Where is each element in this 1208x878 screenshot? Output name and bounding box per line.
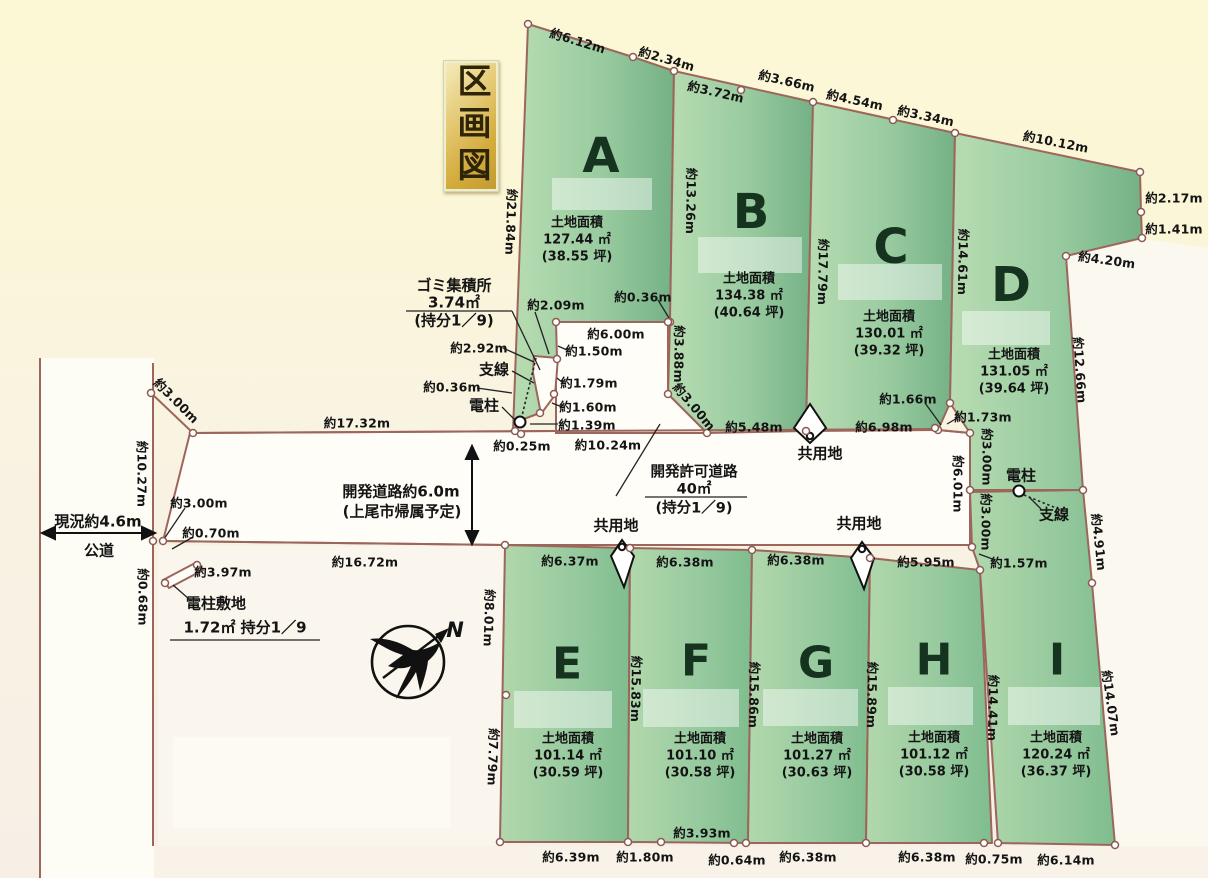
permit-road-label-3: (持分1／9) (656, 497, 733, 518)
dim-road-1732: 約17.32m (324, 413, 390, 432)
dim-right-1: 約2.17m (1145, 188, 1203, 207)
dim-ef-side: 約15.83m (627, 656, 647, 723)
plot-H-label: H (916, 635, 953, 686)
subdivision-map: 区画図 A B C D E F G H I 土地面積 127.44 ㎡ (38.… (0, 0, 1208, 878)
plot-F-label: F (681, 636, 711, 687)
dev-road-label-2: (上尾市帰属予定) (343, 501, 462, 522)
dim-f-bot-2: 約3.93m (673, 823, 731, 842)
dim-gomi-edge: 約2.09m (527, 295, 585, 314)
plot-D-area: 土地面積 131.05 ㎡ (39.64 坪) (979, 347, 1050, 398)
public-road-width-label: 現況約4.6m (54, 511, 141, 532)
plot-A-label: A (582, 128, 619, 184)
plot-E-area: 土地面積 101.14 ㎡ (30.59 坪) (533, 731, 604, 782)
dim-left-068: 約0.68m (135, 568, 154, 626)
dim-road-1024: 約10.24m (575, 435, 641, 454)
utility-pole-left-icon (515, 417, 526, 428)
plot-G-label: G (798, 638, 834, 689)
pole-site-label: 電柱敷地 (186, 593, 246, 614)
guy-wire-label-right: 支線 (1039, 504, 1069, 525)
dim-e-left-2: 約7.79m (484, 728, 505, 786)
dim-seg-160: 約1.60m (559, 397, 617, 416)
dim-i-157: 約1.57m (990, 553, 1048, 572)
dim-fg-side: 約15.86m (745, 662, 765, 729)
blank-note-box (173, 737, 450, 828)
dim-ab-side: 約13.26m (682, 168, 702, 235)
dim-right-2: 約1.41m (1145, 219, 1203, 238)
plot-H-area: 土地面積 101.12 ㎡ (30.58 坪) (899, 730, 970, 781)
plot-B-label: B (733, 184, 770, 240)
common-land-label-2: 共用地 (593, 515, 638, 536)
dim-seg-179: 約1.79m (560, 373, 618, 392)
dim-f-top: 約6.38m (656, 552, 714, 571)
garbage-station-share: (持分1／9) (414, 310, 494, 331)
public-road-label: 公道 (84, 540, 114, 561)
pole-site-detail: 1.72㎡ 持分1／9 (183, 617, 306, 638)
dim-left-070: 約0.70m (182, 523, 240, 542)
common-land-label-1: 共用地 (797, 443, 842, 464)
dim-e-bot: 約6.39m (542, 847, 600, 866)
dim-gh-side: 約15.89m (863, 662, 883, 729)
plot-E-label: E (552, 639, 582, 690)
permit-road-label-2: 40㎡ (677, 478, 712, 499)
dim-left-1027: 約10.27m (134, 441, 153, 507)
dim-d-173: 約1.73m (954, 407, 1012, 426)
dim-seg-139: 約1.39m (558, 415, 616, 434)
dim-left-397: 約3.97m (194, 562, 252, 581)
dev-road-label-1: 開発道路約6.0m (342, 481, 459, 502)
dim-g-bot: 約6.38m (779, 847, 837, 866)
dim-road-1672: 約16.72m (332, 552, 398, 571)
plot-I-label: I (1049, 635, 1065, 686)
dim-i-bot-2: 約6.14m (1037, 850, 1095, 869)
dim-h-bot: 約6.38m (898, 847, 956, 866)
utility-pole-right-icon (1014, 486, 1025, 497)
dim-d-300a: 約3.00m (979, 428, 998, 486)
dim-seg-292: 約2.92m (450, 338, 508, 357)
plot-F-area: 土地面積 101.10 ㎡ (30.58 坪) (665, 731, 736, 782)
dim-bc-side: 約17.79m (814, 239, 834, 306)
dim-hi-side: 約14.41m (984, 675, 1004, 742)
dim-f-bot-1: 約1.80m (616, 847, 674, 866)
dim-f-bot-3: 約0.64m (708, 850, 766, 869)
dim-i-bot-1: 約0.75m (965, 849, 1023, 868)
dim-seg-025: 約0.25m (493, 436, 551, 455)
dim-b-bottom: 約5.48m (725, 417, 783, 436)
utility-pole-label-left: 電柱 (469, 395, 499, 416)
plot-I-area: 土地面積 120.24 ㎡ (36.37 坪) (1021, 730, 1092, 781)
compass-north-label: N (446, 618, 464, 642)
dim-e-top: 約6.37m (541, 551, 599, 570)
plot-C-label: C (873, 219, 908, 275)
dim-road-601: 約6.01m (950, 455, 969, 513)
dim-b-corner: 約0.36m (614, 287, 672, 306)
dim-c-166: 約1.66m (879, 389, 937, 408)
dim-d-300b: 約3.00m (978, 493, 997, 551)
dim-h-top: 約5.95m (897, 552, 955, 571)
dim-c-bottom: 約6.98m (855, 417, 913, 436)
dim-left-300b: 約3.00m (170, 493, 228, 512)
plot-B-area: 土地面積 134.38 ㎡ (40.64 坪) (714, 271, 785, 322)
dim-g-top: 約6.38m (767, 550, 825, 569)
plot-A-area: 土地面積 127.44 ㎡ (38.55 坪) (542, 215, 613, 266)
map-title-box: 区画図 (443, 60, 499, 192)
dim-pole-036: 約0.36m (423, 377, 481, 396)
dim-a-left: 約21.84m (501, 188, 522, 255)
dim-seg-150: 約1.50m (565, 341, 623, 360)
common-land-label-3: 共用地 (836, 513, 881, 534)
dim-cd-side: 約14.61m (954, 229, 974, 296)
plot-C-area: 土地面積 130.01 ㎡ (39.32 坪) (854, 309, 925, 360)
dim-b-388: 約3.88m (670, 325, 690, 383)
map-title: 区画図 (454, 63, 488, 189)
plot-G-area: 土地面積 101.27 ㎡ (30.63 坪) (782, 731, 853, 782)
dim-e-left-1: 約8.01m (480, 589, 501, 647)
plot-D-label: D (991, 257, 1031, 313)
utility-pole-label-right: 電柱 (1006, 465, 1036, 486)
guy-wire-label-left: 支線 (479, 359, 509, 380)
